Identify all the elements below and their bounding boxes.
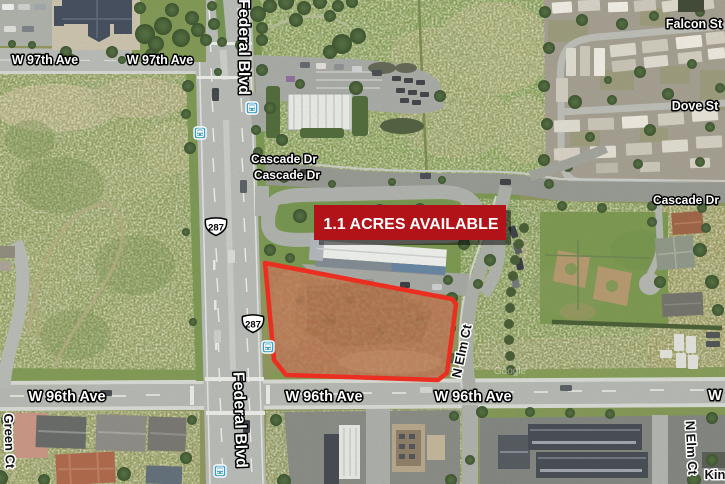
svg-text:1.1 ACRES AVAILABLE: 1.1 ACRES AVAILABLE <box>323 216 498 233</box>
svg-text:W 97th Ave: W 97th Ave <box>127 53 193 67</box>
svg-text:287: 287 <box>208 222 224 233</box>
svg-text:Federal Blvd: Federal Blvd <box>229 372 249 469</box>
svg-text:Federal Blvd: Federal Blvd <box>235 0 252 95</box>
svg-text:W 96th Ave: W 96th Ave <box>434 389 511 405</box>
svg-text:Cascade Dr: Cascade Dr <box>254 168 320 182</box>
svg-text:W 97th Ave: W 97th Ave <box>12 53 78 67</box>
svg-text:Cascade Dr: Cascade Dr <box>653 193 719 207</box>
svg-text:Green Ct: Green Ct <box>1 413 18 469</box>
svg-text:287: 287 <box>245 319 261 330</box>
svg-text:Dove St: Dove St <box>672 99 719 113</box>
svg-text:Kin: Kin <box>705 467 725 482</box>
svg-text:N Elm Ct: N Elm Ct <box>683 420 701 476</box>
svg-text:W 9: W 9 <box>708 388 725 404</box>
svg-text:W 96th Ave: W 96th Ave <box>285 389 362 405</box>
svg-text:Cascade Dr: Cascade Dr <box>251 152 317 166</box>
svg-text:W 96th Ave: W 96th Ave <box>28 389 105 405</box>
svg-text:Falcon St: Falcon St <box>666 17 723 31</box>
